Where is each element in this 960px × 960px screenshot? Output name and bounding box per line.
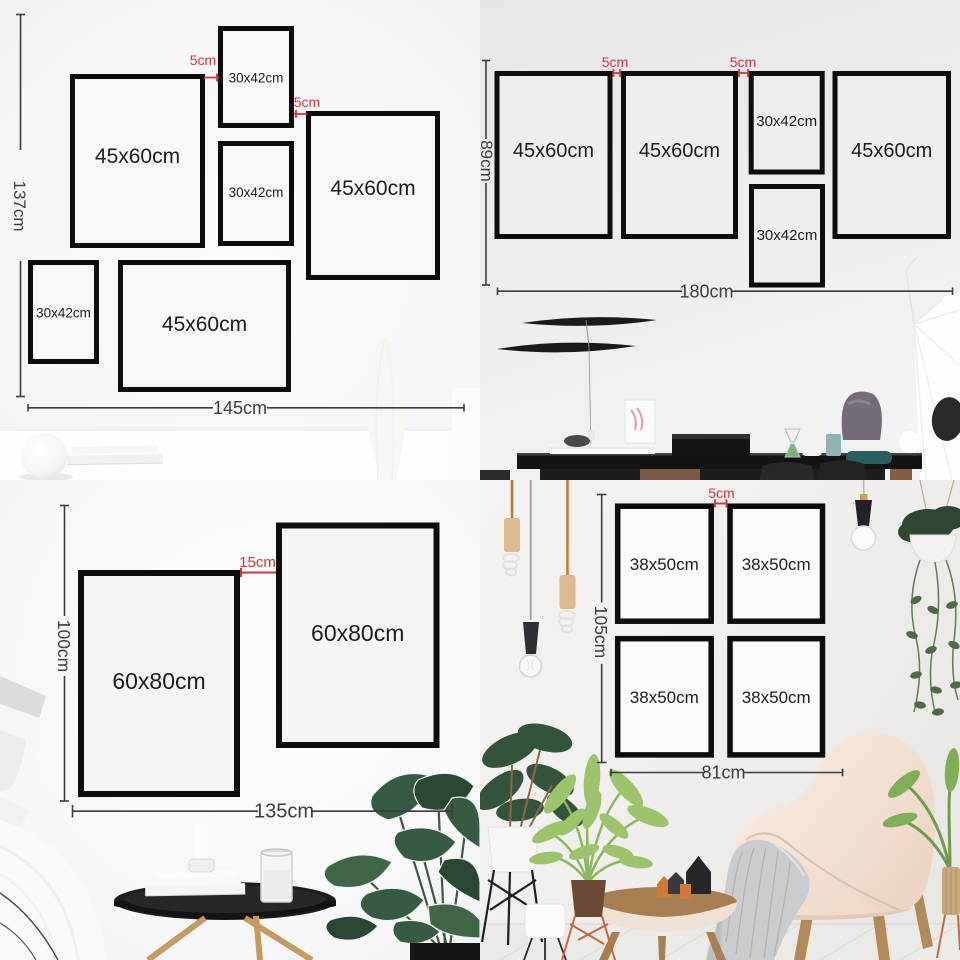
svg-text:45x60cm: 45x60cm [851,140,932,162]
svg-text:180cm: 180cm [679,282,733,302]
svg-text:30x42cm: 30x42cm [756,113,817,130]
svg-text:135cm: 135cm [254,801,314,823]
svg-text:60x80cm: 60x80cm [311,620,404,646]
svg-text:100cm: 100cm [54,620,74,673]
svg-text:145cm: 145cm [213,398,267,418]
svg-text:60x80cm: 60x80cm [112,668,205,694]
svg-text:30x42cm: 30x42cm [757,227,818,244]
svg-text:5cm: 5cm [602,54,628,70]
svg-text:5cm: 5cm [190,52,216,68]
svg-text:38x50cm: 38x50cm [742,688,811,707]
svg-text:38x50cm: 38x50cm [742,555,811,574]
svg-text:30x42cm: 30x42cm [229,71,284,86]
svg-text:105cm: 105cm [591,606,611,659]
svg-text:5cm: 5cm [708,485,734,501]
svg-text:30x42cm: 30x42cm [36,306,91,321]
svg-text:89cm: 89cm [480,140,496,182]
svg-text:5cm: 5cm [730,54,756,70]
svg-text:45x60cm: 45x60cm [162,313,247,336]
svg-text:45x60cm: 45x60cm [513,140,594,162]
svg-text:45x60cm: 45x60cm [330,177,415,200]
svg-text:45x60cm: 45x60cm [639,140,720,162]
svg-text:5cm: 5cm [294,94,320,110]
svg-text:137cm: 137cm [10,180,29,231]
svg-text:15cm: 15cm [239,554,276,571]
svg-text:45x60cm: 45x60cm [95,145,180,168]
svg-text:38x50cm: 38x50cm [630,688,699,707]
svg-text:81cm: 81cm [701,763,745,783]
svg-text:38x50cm: 38x50cm [630,555,699,574]
svg-text:30x42cm: 30x42cm [229,185,284,200]
